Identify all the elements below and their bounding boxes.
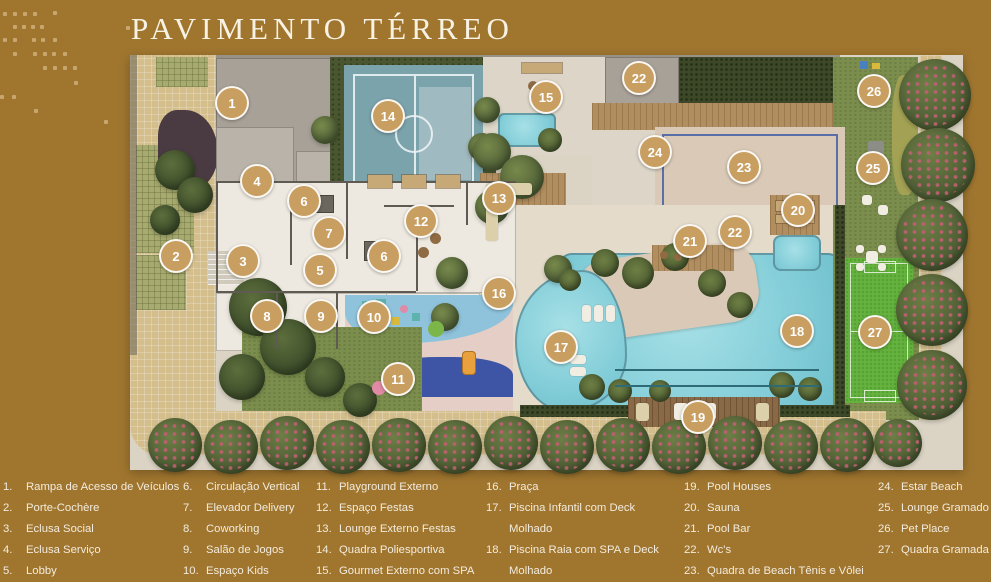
legend-item-19: 19.Pool Houses	[684, 477, 864, 498]
tree	[820, 418, 874, 472]
plan-marker-22: 22	[622, 61, 656, 95]
legend-item-label: Wc's	[707, 540, 731, 561]
legend-item-number: 9.	[183, 540, 206, 561]
pet-toy	[872, 63, 880, 69]
legend-item-label: Quadra de Beach Tênis e Vôlei	[707, 561, 864, 582]
legend-item-number: 5.	[3, 561, 26, 582]
pet-toy	[860, 61, 868, 69]
legend-item-label: Eclusa Social	[26, 519, 94, 540]
plan-marker-23: 23	[727, 150, 761, 184]
legend-item-label: Eclusa Serviço	[26, 540, 101, 561]
tree	[219, 354, 265, 400]
building-wall	[466, 181, 468, 225]
legend-item-15: 15.Gourmet Externo com SPA	[316, 561, 474, 582]
region-wood-walkway	[592, 103, 835, 130]
legend: 1.Rampa de Acesso de Veículos2.Porte-Coc…	[0, 470, 991, 581]
legend-column-1: 1.Rampa de Acesso de Veículos2.Porte-Coc…	[3, 477, 179, 582]
goal-box	[864, 390, 896, 402]
bar-stool	[660, 251, 668, 259]
garden-chair	[862, 195, 872, 205]
legend-item-number: 2.	[3, 498, 26, 519]
plan-marker-12: 12	[404, 204, 438, 238]
legend-item-label: Piscina Raia com SPA e Deck	[509, 540, 659, 561]
playground-dome	[428, 321, 444, 337]
legend-column-2: 6.Circulação Vertical7.Elevador Delivery…	[183, 477, 300, 582]
legend-item-label: Lounge Gramado	[901, 498, 989, 519]
legend-item-label: Lobby	[26, 561, 57, 582]
dots-pattern	[3, 12, 7, 16]
pool-lounger	[606, 305, 615, 322]
legend-item-label: Salão de Jogos	[206, 540, 284, 561]
legend-item-label: Sauna	[707, 498, 740, 519]
legend-item-18: 18.Piscina Raia com SPA e Deck	[486, 540, 659, 561]
gourmet-bar	[522, 63, 562, 73]
tree	[204, 420, 258, 474]
legend-item-10: 10.Espaço Kids	[183, 561, 300, 582]
region-grass-pavers	[156, 57, 208, 87]
plan-marker-22: 22	[718, 215, 752, 249]
legend-item-label: Quadra Poliesportiva	[339, 540, 445, 561]
legend-item-number: 18.	[486, 540, 509, 561]
round-table	[430, 233, 441, 244]
legend-item-3: 3.Eclusa Social	[3, 519, 179, 540]
tree	[897, 350, 967, 420]
plan-marker-8: 8	[250, 299, 284, 333]
legend-item-label: Coworking	[206, 519, 259, 540]
tree	[311, 116, 339, 144]
legend-item-label: Rampa de Acesso de Veículos	[26, 477, 179, 498]
region-spa	[773, 235, 821, 271]
legend-item-number: 11.	[316, 477, 339, 498]
legend-item-17: 17.Piscina Infantil com Deck	[486, 498, 659, 519]
plan-marker-9: 9	[304, 299, 338, 333]
plan-marker-5: 5	[303, 253, 337, 287]
legend-item-number: 10.	[183, 561, 206, 582]
legend-item-number: 7.	[183, 498, 206, 519]
tree	[596, 418, 650, 472]
legend-item-17-line2: Molhado	[486, 519, 659, 540]
legend-item-label: Espaço Kids	[206, 561, 269, 582]
plan-marker-17: 17	[544, 330, 578, 364]
legend-item-number: 15.	[316, 561, 339, 582]
legend-item-1: 1.Rampa de Acesso de Veículos	[3, 477, 179, 498]
legend-item-number: 26.	[878, 519, 901, 540]
plan-marker-18: 18	[780, 314, 814, 348]
kids-toy	[392, 317, 400, 325]
legend-item-9: 9.Salão de Jogos	[183, 540, 300, 561]
legend-item-number: 14.	[316, 540, 339, 561]
legend-item-label: Espaço Festas	[339, 498, 414, 519]
tree	[316, 420, 370, 474]
plan-marker-4: 4	[240, 164, 274, 198]
site-plan: 1141522262423254613201272221263516891018…	[130, 55, 963, 470]
legend-item-label: Quadra Gramada	[901, 540, 989, 561]
tree	[901, 128, 975, 202]
kids-toy	[412, 313, 420, 321]
tree	[896, 274, 968, 346]
plan-marker-21: 21	[673, 224, 707, 258]
plan-marker-6: 6	[287, 184, 321, 218]
palm-tree	[798, 377, 822, 401]
legend-column-6: 24.Estar Beach25.Lounge Gramado26.Pet Pl…	[878, 477, 989, 561]
legend-item-number: 17.	[486, 498, 509, 519]
legend-item-number: 24.	[878, 477, 901, 498]
legend-item-11: 11.Playground Externo	[316, 477, 474, 498]
tree	[372, 418, 426, 472]
legend-item-24: 24.Estar Beach	[878, 477, 989, 498]
tree	[148, 418, 202, 472]
plan-marker-3: 3	[226, 244, 260, 278]
legend-item-22: 22.Wc's	[684, 540, 864, 561]
legend-item-7: 7.Elevador Delivery	[183, 498, 300, 519]
legend-item-number: 20.	[684, 498, 707, 519]
tree	[177, 177, 213, 213]
legend-item-2: 2.Porte-Cochère	[3, 498, 179, 519]
palm-tree	[608, 379, 632, 403]
palm-tree	[649, 380, 671, 402]
legend-item-8: 8.Coworking	[183, 519, 300, 540]
pool-lane-line	[615, 369, 819, 371]
legend-item-label: Pool Houses	[707, 477, 771, 498]
legend-item-number: 16.	[486, 477, 509, 498]
pool-lounger	[594, 305, 603, 322]
pool-lane-line	[615, 385, 819, 387]
palm-tree	[591, 249, 619, 277]
building-wall	[346, 181, 348, 259]
garden-chair	[856, 245, 864, 253]
boundary-wall	[130, 55, 137, 355]
legend-item-number: 3.	[3, 519, 26, 540]
tree	[764, 420, 818, 474]
legend-item-number: 23.	[684, 561, 707, 582]
legend-item-number: 25.	[878, 498, 901, 519]
legend-item-label: Pet Place	[901, 519, 949, 540]
legend-item-20: 20.Sauna	[684, 498, 864, 519]
round-table	[418, 247, 429, 258]
goal-box	[864, 261, 896, 273]
plan-marker-2: 2	[159, 239, 193, 273]
legend-item-4: 4.Eclusa Serviço	[3, 540, 179, 561]
legend-item-number: 22.	[684, 540, 707, 561]
legend-item-label: Circulação Vertical	[206, 477, 300, 498]
tree	[428, 420, 482, 474]
legend-item-label: Praça	[509, 477, 539, 498]
legend-item-label: Pool Bar	[707, 519, 750, 540]
legend-item-number: 21.	[684, 519, 707, 540]
plan-marker-26: 26	[857, 74, 891, 108]
tree	[540, 420, 594, 474]
legend-item-label: Estar Beach	[901, 477, 963, 498]
legend-item-label: Piscina Infantil com Deck	[509, 498, 635, 519]
plan-marker-11: 11	[381, 362, 415, 396]
plan-marker-10: 10	[357, 300, 391, 334]
legend-item-number: 12.	[316, 498, 339, 519]
garden-chair	[856, 263, 864, 271]
legend-item-23: 23.Quadra de Beach Tênis e Vôlei	[684, 561, 864, 582]
plan-marker-27: 27	[858, 315, 892, 349]
building-wall	[216, 291, 416, 293]
garden-chair	[878, 245, 886, 253]
party-table	[402, 175, 426, 188]
legend-item-6: 6.Circulação Vertical	[183, 477, 300, 498]
tree	[899, 59, 971, 131]
page-title: PAVIMENTO TÉRREO	[131, 11, 514, 47]
building-wall	[290, 205, 292, 265]
palm-tree	[579, 374, 605, 400]
legend-item-25: 25.Lounge Gramado	[878, 498, 989, 519]
tree	[474, 97, 500, 123]
legend-item-label: Lounge Externo Festas	[339, 519, 456, 540]
legend-column-3: 11.Playground Externo12.Espaço Festas13.…	[316, 477, 474, 582]
legend-item-26: 26.Pet Place	[878, 519, 989, 540]
building-wall	[216, 181, 218, 293]
legend-item-number: 19.	[684, 477, 707, 498]
plan-marker-20: 20	[781, 193, 815, 227]
palm-tree	[727, 292, 753, 318]
palm-tree	[559, 269, 581, 291]
legend-item-number: 27.	[878, 540, 901, 561]
pool-house-sofa	[636, 403, 649, 421]
party-table	[436, 175, 460, 188]
tree	[896, 199, 968, 271]
plan-marker-19: 19	[681, 400, 715, 434]
plan-marker-25: 25	[856, 151, 890, 185]
legend-item-number: 1.	[3, 477, 26, 498]
tree	[260, 416, 314, 470]
region-main-building	[216, 181, 516, 293]
legend-item-14: 14.Quadra Poliesportiva	[316, 540, 474, 561]
legend-item-12: 12.Espaço Festas	[316, 498, 474, 519]
palm-tree	[538, 128, 562, 152]
legend-item-18-line2: Molhado	[486, 561, 659, 582]
tree	[874, 419, 922, 467]
legend-item-label: Playground Externo	[339, 477, 438, 498]
legend-item-label: Porte-Cochère	[26, 498, 99, 519]
plan-marker-16: 16	[482, 276, 516, 310]
palm-tree	[622, 257, 654, 289]
pool-lounger	[582, 305, 591, 322]
plan-marker-24: 24	[638, 135, 672, 169]
palm-tree	[698, 269, 726, 297]
legend-item-label: Elevador Delivery	[206, 498, 295, 519]
legend-item-27: 27.Quadra Gramada	[878, 540, 989, 561]
tree	[305, 357, 345, 397]
plan-marker-1: 1	[215, 86, 249, 120]
legend-item-13: 13.Lounge Externo Festas	[316, 519, 474, 540]
tree	[708, 416, 762, 470]
plan-marker-7: 7	[312, 216, 346, 250]
pool-lounger	[570, 367, 586, 376]
tree	[150, 205, 180, 235]
legend-item-21: 21.Pool Bar	[684, 519, 864, 540]
legend-item-16: 16.Praça	[486, 477, 659, 498]
plan-marker-13: 13	[482, 181, 516, 215]
party-table	[368, 175, 392, 188]
garden-chair	[878, 205, 888, 215]
plan-marker-15: 15	[529, 80, 563, 114]
legend-item-number: 6.	[183, 477, 206, 498]
playground-slide	[462, 351, 476, 375]
plan-marker-14: 14	[371, 99, 405, 133]
legend-column-4: 16.Praça17.Piscina Infantil com DeckMolh…	[486, 477, 659, 582]
legend-column-5: 19.Pool Houses20.Sauna21.Pool Bar22.Wc's…	[684, 477, 864, 582]
tree	[484, 416, 538, 470]
tree	[436, 257, 468, 289]
legend-item-number: 13.	[316, 519, 339, 540]
legend-item-5: 5.Lobby	[3, 561, 179, 582]
region-hedge-block	[679, 57, 835, 103]
pool-house-sofa	[756, 403, 769, 421]
plan-marker-6: 6	[367, 239, 401, 273]
legend-item-number: 4.	[3, 540, 26, 561]
legend-item-label: Gourmet Externo com SPA	[339, 561, 474, 582]
legend-item-number: 8.	[183, 519, 206, 540]
kids-toy	[400, 305, 408, 313]
region-hedge	[835, 205, 845, 417]
